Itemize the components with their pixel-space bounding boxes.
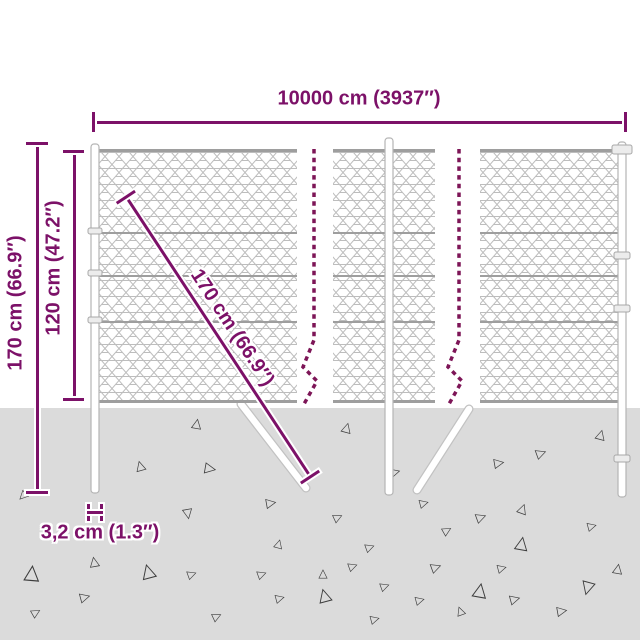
dimension-above-ground-line [73, 151, 76, 400]
dimension-above-ground-label: 120 cm (47.2″) [43, 200, 66, 335]
dimension-above-ground-cap-top [63, 150, 84, 153]
dimension-post-width-label: 3,2 cm (1.3″) [41, 522, 160, 545]
ground-anchor-stakes [241, 404, 469, 490]
dimension-width-tick-right [624, 112, 627, 132]
post-right [618, 142, 626, 497]
dimension-post-width-bar [87, 511, 103, 514]
dimension-width-line [93, 121, 625, 124]
dimension-total-height-cap-top [26, 142, 48, 145]
dimension-width-tick-left [92, 112, 95, 132]
dimension-width-label: 10000 cm (3937″) [277, 88, 440, 111]
diagram-canvas: △△△△△△△△△△△△△△△△△△△△△△△△△△△△△△△△△△△△△△△△… [0, 0, 640, 640]
dimension-above-ground-cap-bottom [63, 398, 84, 401]
dimension-total-height-cap-bottom [26, 491, 48, 494]
dimension-total-height-label: 170 cm (66.9″) [5, 235, 28, 370]
dimension-total-height-line [36, 143, 39, 493]
post-middle [385, 138, 393, 495]
